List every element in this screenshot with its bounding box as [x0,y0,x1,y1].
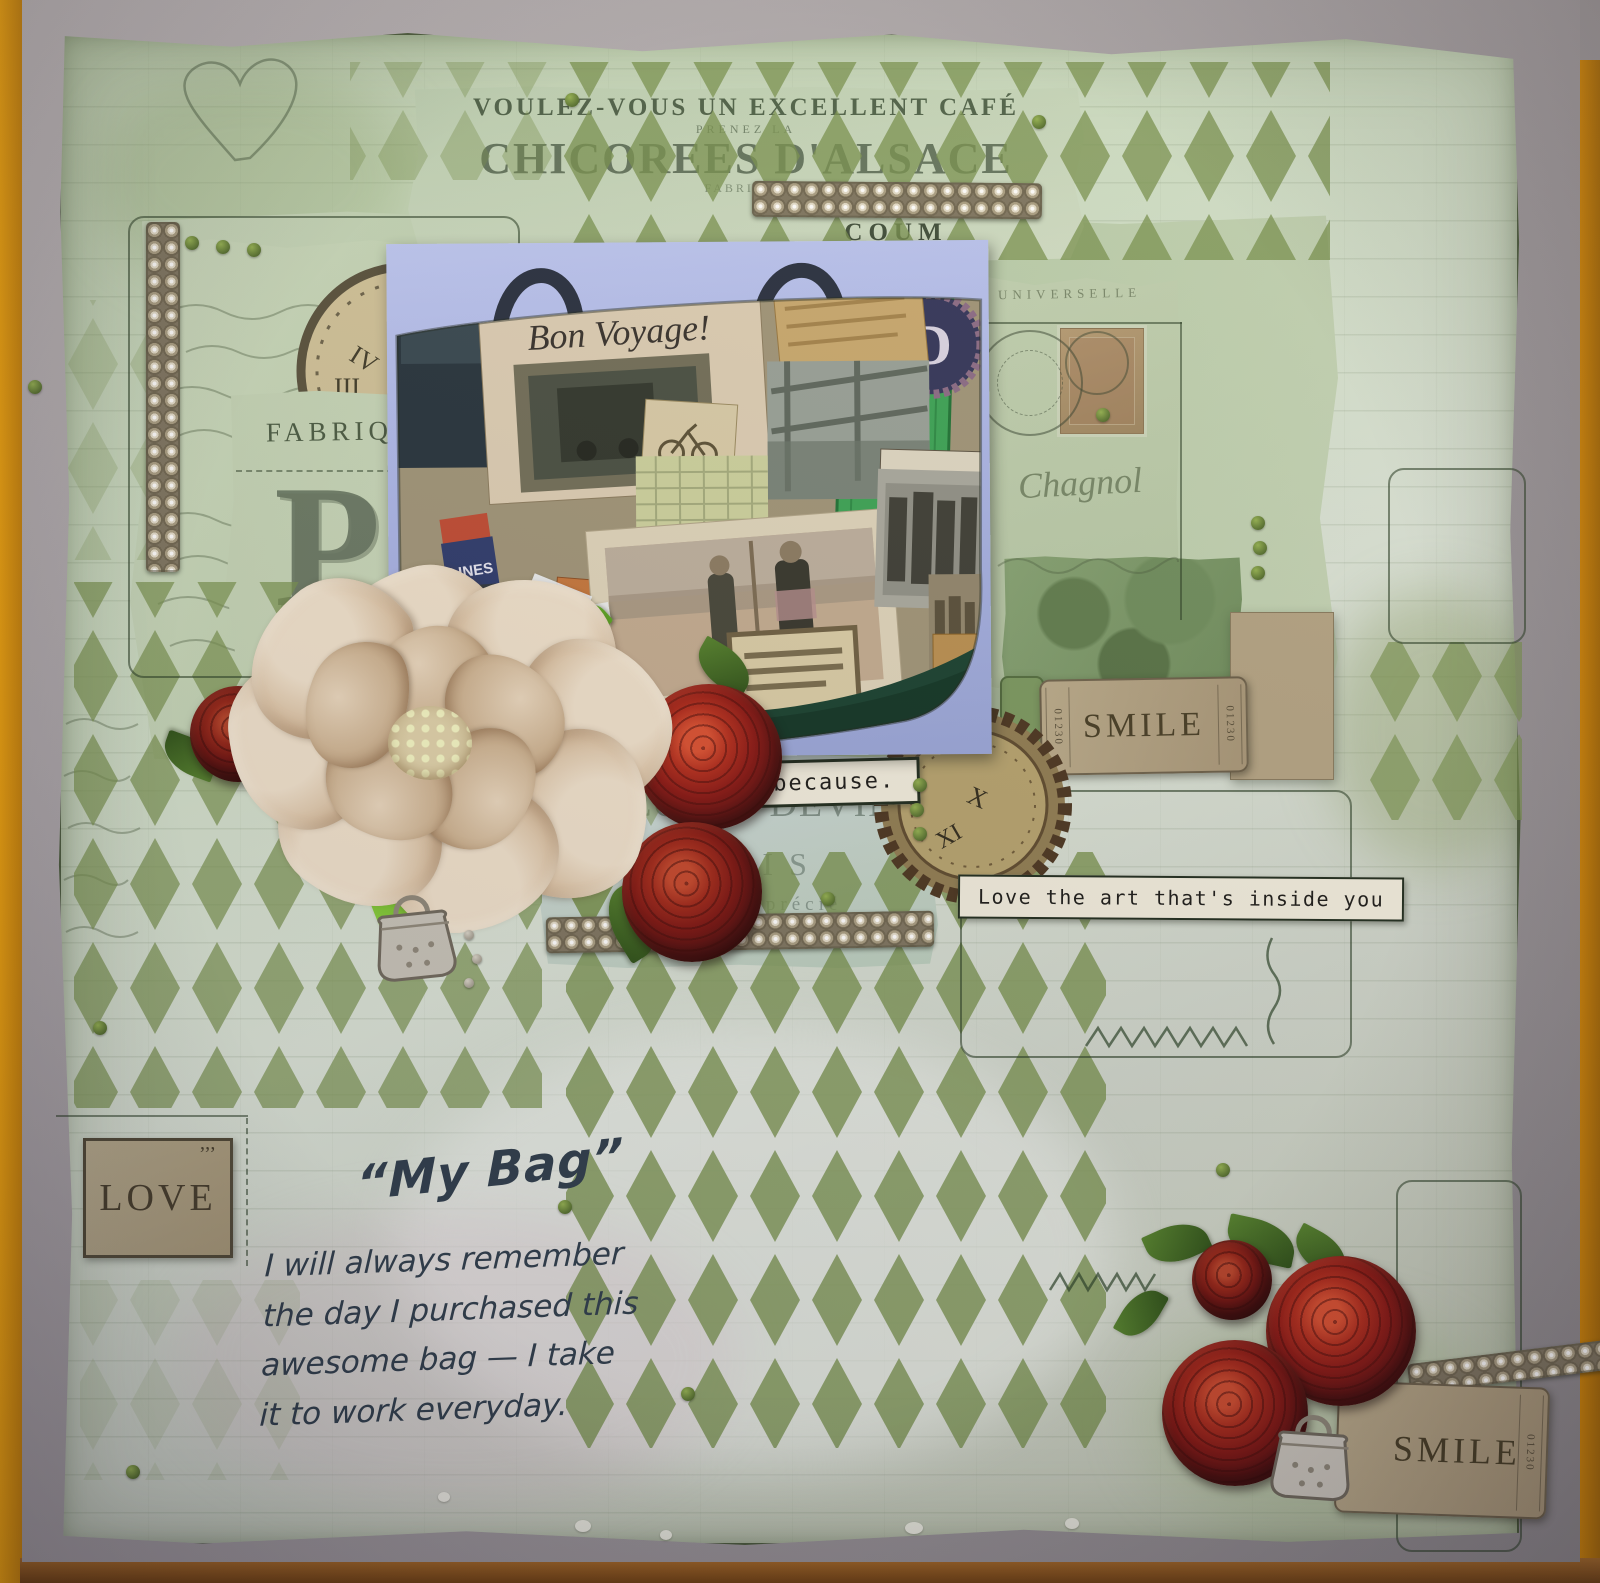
enamel-dot [1251,516,1265,530]
enamel-dot [185,236,199,250]
love-stitch-top [56,1115,248,1117]
flower-center [388,706,472,780]
ticket-edge-number: 01230 [1523,1434,1536,1472]
rhinestone-strip-top [752,181,1042,220]
enamel-dot [216,240,230,254]
love-ticket-marks: ’’’ [199,1143,216,1166]
enamel-dot [565,93,579,107]
purse-charm [1262,1399,1361,1509]
paint-chip [1065,1518,1079,1529]
love-ticket-text: LOVE [99,1176,216,1220]
paint-chip [905,1522,923,1534]
bead-charm [464,978,474,988]
enamel-dot [1096,408,1110,422]
enamel-dot [910,803,924,817]
enamel-dot [247,243,261,257]
enamel-dot [1251,566,1265,580]
scrapbook-photo: IV III II FABRIQUE P VOULEZ-VOUS UN EXCE… [0,0,1600,1583]
paint-chip [575,1520,591,1532]
bead-charm [472,954,482,964]
enamel-dot [558,1200,572,1214]
enamel-dot [126,1465,140,1479]
enamel-dot [913,778,927,792]
love-art-label: Love the art that's inside you [958,874,1405,921]
purse-charm [363,879,465,988]
enamel-dot [821,892,835,906]
enamel-dot [93,1021,107,1035]
enamel-dot [28,380,42,394]
bead-charm [464,930,474,940]
love-ticket: LOVE ’’’ [83,1138,233,1258]
paint-chip [438,1492,450,1502]
paint-chip [660,1530,672,1540]
smile-ticket-text: SMILE [1392,1427,1521,1473]
enamel-dot [1032,115,1046,129]
rhinestone-strip-vertical [146,222,180,572]
enamel-dot [1216,1163,1230,1177]
enamel-dot [681,1387,695,1401]
journaling-text: I will always remember the day I purchas… [259,1229,641,1441]
enamel-dot [913,827,927,841]
enamel-dot [1253,541,1267,555]
ticket-edge-right: 01230 [1516,1395,1544,1512]
love-stitch-right [246,1118,248,1266]
rose [1192,1240,1272,1320]
